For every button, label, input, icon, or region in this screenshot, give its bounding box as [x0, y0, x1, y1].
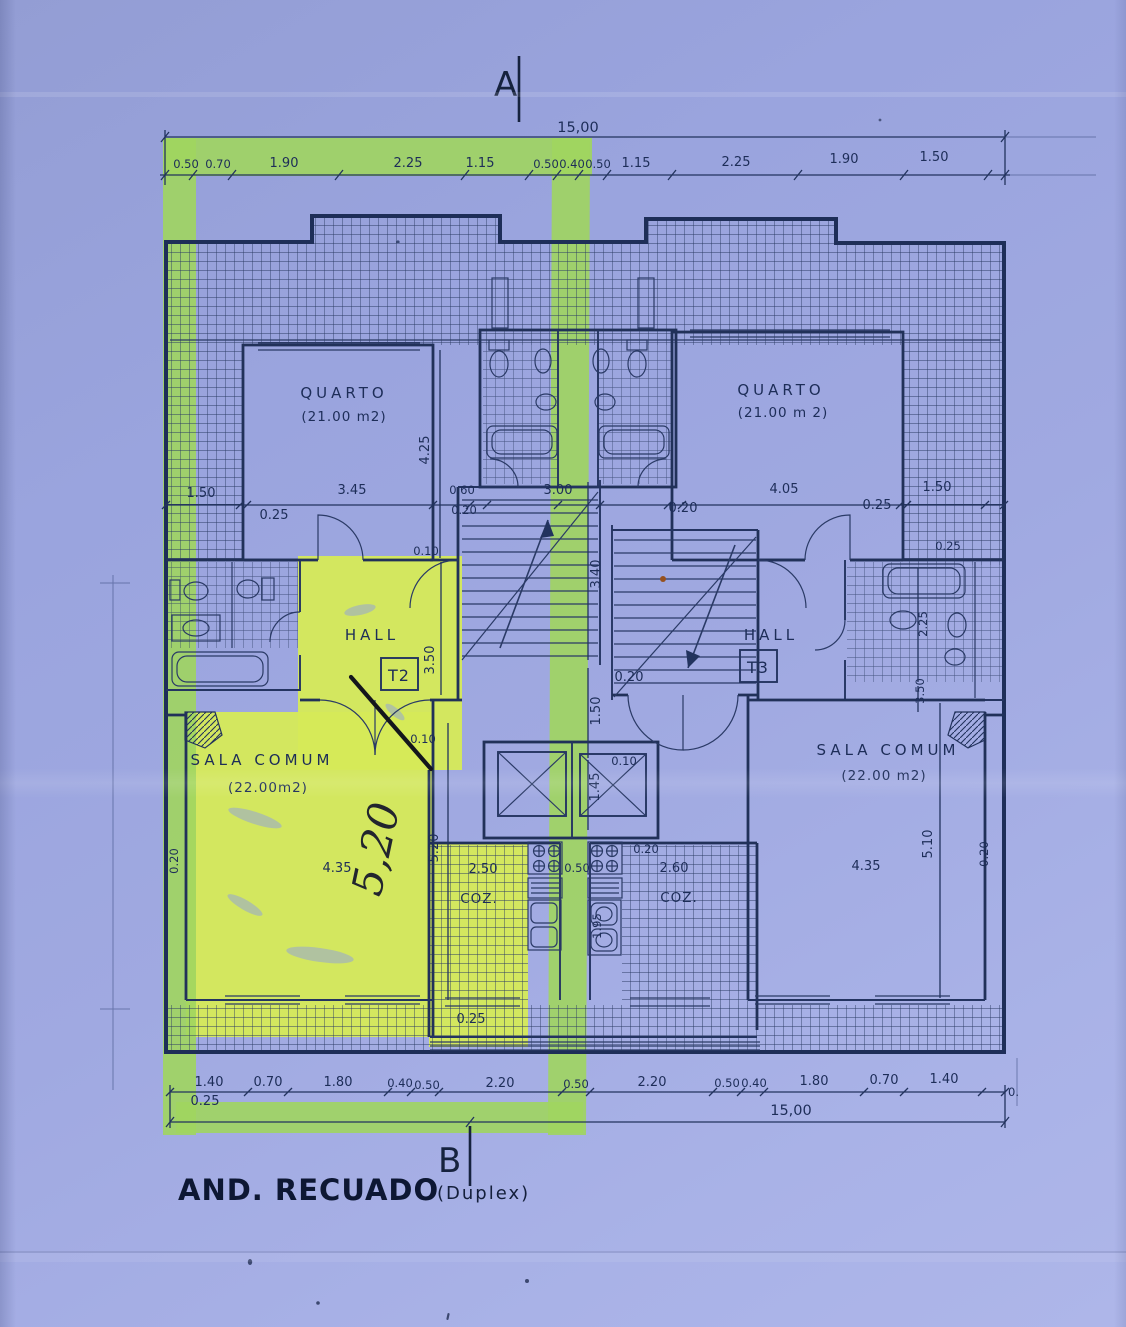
- drawing-subtitle: (Duplex): [437, 1183, 530, 1204]
- dim-label: 1.80: [324, 1075, 353, 1090]
- room-area-quarto-left: (21.00 m2): [301, 409, 386, 425]
- dim-label: 1.90: [830, 152, 859, 167]
- dim-label: 2.25: [916, 611, 930, 637]
- dim-label: 2.20: [638, 1075, 667, 1090]
- dim-label: 1.50: [187, 486, 216, 501]
- dim-label: 4.25: [418, 436, 433, 465]
- dim-label: 0.20: [633, 842, 659, 856]
- dim-label: 1.80: [800, 1074, 829, 1089]
- dim-label: 3.45: [338, 483, 367, 498]
- dim-label: 0.70: [870, 1073, 899, 1088]
- stove-right-burners: [592, 846, 618, 872]
- dim-label: 0.25: [863, 498, 892, 513]
- room-area-sala-left: (22.00m2): [228, 780, 308, 796]
- stairs: [462, 492, 756, 697]
- dim-label: 0.20: [451, 503, 477, 517]
- dim-label: 0.10: [611, 754, 637, 768]
- dim-label: 2.60: [660, 861, 689, 876]
- room-label-coz-left: COZ.: [460, 891, 498, 907]
- drawing-title: AND. RECUADO: [178, 1173, 439, 1207]
- dim-label: 1.40: [930, 1072, 959, 1087]
- dim-label: 1.45: [588, 773, 603, 802]
- highlight-band-bottom: [176, 1102, 583, 1133]
- dim-label: 1.15: [622, 156, 651, 171]
- room-label-sala-left: SALA COMUM: [191, 751, 334, 769]
- dim-label: 0.70: [205, 157, 231, 171]
- dim-label: 3.50: [423, 646, 438, 675]
- dim-label: 2.50: [469, 862, 498, 877]
- dim-label: 0.20: [669, 501, 698, 516]
- dim-label: 0.10: [413, 544, 439, 558]
- dim-label: 1.15: [466, 156, 495, 171]
- room-label-coz-right: COZ.: [660, 890, 698, 906]
- room-label-quarto-left: QUARTO: [300, 384, 387, 402]
- floor-plan-drawing: A B 15,00 15,00 0. 0.50 0.70 1.90 2.25 1…: [0, 0, 1126, 1327]
- dim-label: 5.10: [921, 830, 936, 859]
- dim-label: 4.05: [770, 482, 799, 497]
- dim-label: 2.25: [722, 155, 751, 170]
- dim-label: 0.40: [741, 1076, 767, 1090]
- dim-label: 5.20: [427, 834, 442, 863]
- dim-label: 1.50: [923, 480, 952, 495]
- dim-label: 1.50: [589, 697, 604, 726]
- unit-label-t3: T3: [746, 658, 769, 677]
- section-marker-b: B: [438, 1141, 461, 1181]
- dim-label: 2.20: [486, 1076, 515, 1091]
- dim-label: 0.10: [410, 732, 436, 746]
- dim-label: 1.95: [590, 913, 604, 939]
- dim-label: 2.25: [394, 156, 423, 171]
- dim-label: 0.25: [260, 508, 289, 523]
- dim-label: 0.25: [935, 539, 961, 553]
- dim-label: 0.50: [563, 1077, 589, 1091]
- dim-label: 0.40: [387, 1076, 413, 1090]
- dim-label: 3.50: [913, 678, 927, 704]
- dim-label: 0.50: [585, 157, 611, 171]
- dim-label: 0.50: [414, 1078, 440, 1092]
- dim-label: 0.50: [564, 861, 590, 875]
- dim-label: 0.50: [533, 157, 559, 171]
- dim-label: 0.20: [615, 670, 644, 685]
- room-label-hall-left: HALL: [345, 626, 399, 644]
- dim-label: 0.70: [254, 1075, 283, 1090]
- room-area-sala-right: (22.00 m2): [841, 768, 926, 784]
- dim-label: 0.25: [457, 1012, 486, 1027]
- room-label-sala-right: SALA COMUM: [817, 741, 960, 759]
- dim-bottom-total: 15,00: [770, 1103, 812, 1119]
- dim-label: 4.35: [852, 859, 881, 874]
- dim-label: 3.40: [589, 560, 604, 589]
- dim-label: 0.20: [977, 841, 991, 867]
- section-marker-a: A: [494, 65, 517, 105]
- dim-label: 1.90: [270, 156, 299, 171]
- dim-label: 1.40: [195, 1075, 224, 1090]
- dim-top-total: 15,00: [557, 120, 599, 136]
- dim-label: 0.40: [559, 157, 585, 171]
- blueprint-photo: A B 15,00 15,00 0. 0.50 0.70 1.90 2.25 1…: [0, 0, 1126, 1327]
- room-label-quarto-right: QUARTO: [737, 381, 824, 399]
- dim-bottom-right-end: 0.: [1008, 1085, 1019, 1099]
- dim-label: 0.25: [191, 1094, 220, 1109]
- dim-label: 0.20: [167, 848, 181, 874]
- room-area-quarto-right: (21.00 m 2): [738, 405, 829, 421]
- dim-label: 3.00: [544, 483, 573, 498]
- room-label-hall-right: HALL: [744, 626, 798, 644]
- dim-label: 0.50: [173, 157, 199, 171]
- unit-label-t2: T2: [387, 666, 410, 685]
- dim-label: 0.50: [714, 1076, 740, 1090]
- dim-label: 1.50: [920, 150, 949, 165]
- dim-label: 0.60: [449, 483, 475, 497]
